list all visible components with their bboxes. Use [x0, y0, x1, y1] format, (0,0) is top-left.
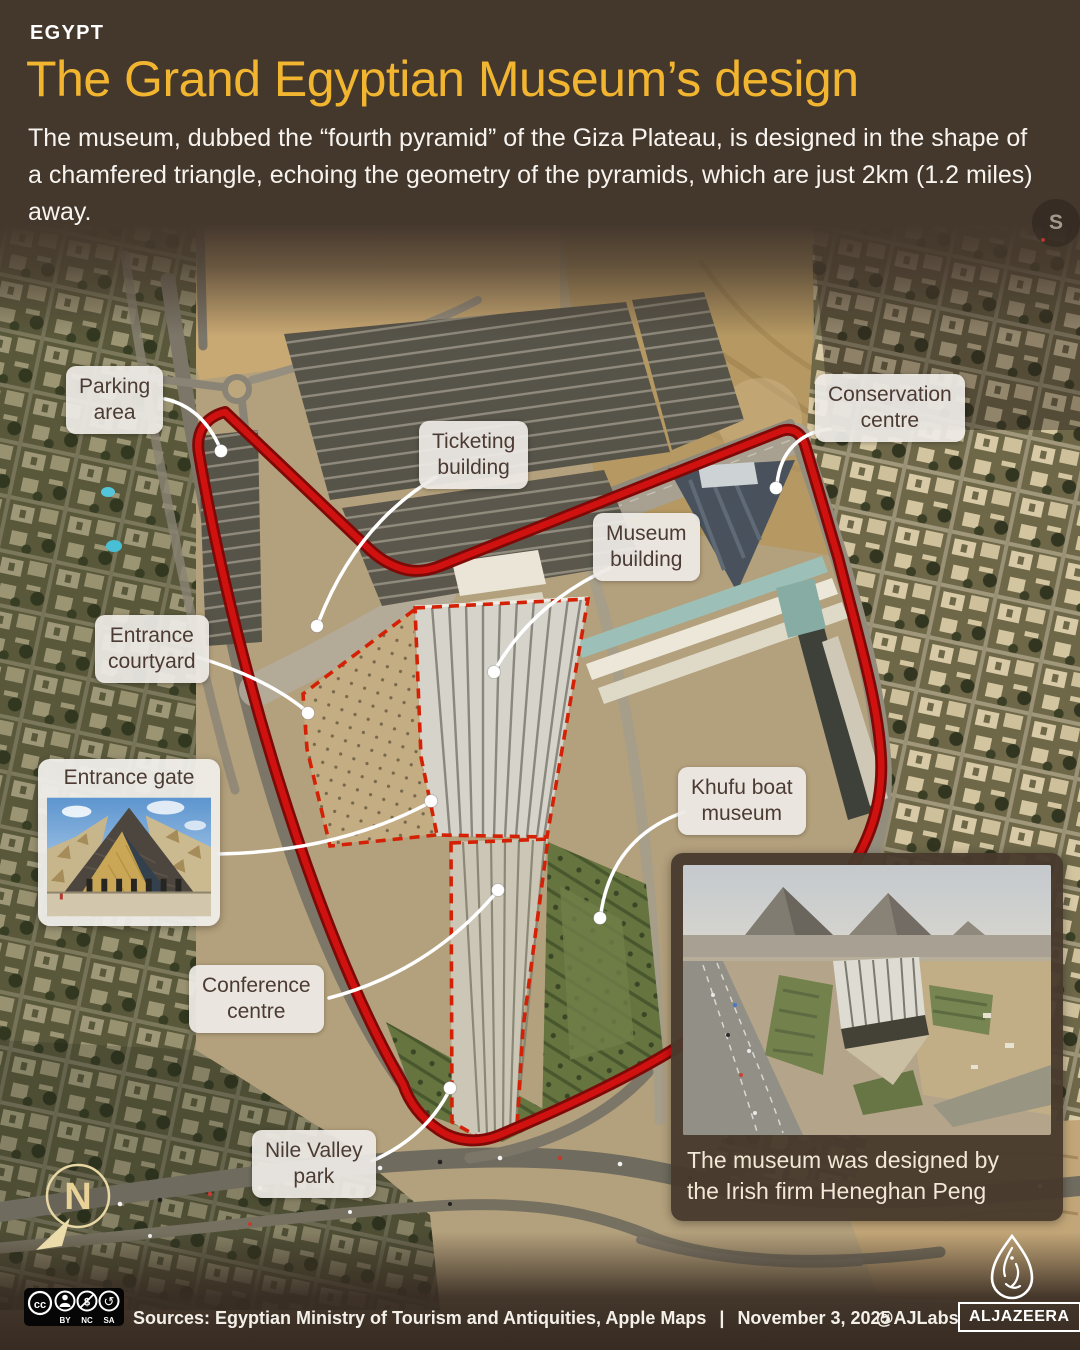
label-ticketing-building: Ticketing building: [419, 421, 528, 489]
label-museum-building: Museum building: [593, 513, 700, 581]
cc-license-badge: cc BY $ NC ↺ SA: [24, 1288, 124, 1328]
compass-n-letter: N: [64, 1176, 91, 1218]
label-khufu-boat-museum: Khufu boat museum: [678, 767, 806, 835]
page-title: The Grand Egyptian Museum’s design: [26, 50, 859, 108]
description: The museum, dubbed the “fourth pyramid” …: [28, 120, 1036, 231]
footer-date: November 3, 2025: [737, 1308, 890, 1329]
sources-text: Sources: Egyptian Ministry of Tourism an…: [133, 1308, 706, 1329]
cc-letters: cc: [34, 1299, 46, 1311]
label-parking-area: Parking area: [66, 366, 163, 434]
aerial-photo: [683, 865, 1051, 1135]
ajlabs-credit: @AJLabs: [876, 1308, 959, 1329]
cc-nc-label: NC: [81, 1316, 93, 1325]
cc-by-label: BY: [59, 1316, 71, 1325]
imagery-badge-tick-icon: [1041, 238, 1045, 242]
compass-needle-icon: [36, 1218, 70, 1250]
label-conservation-centre: Conservation centre: [815, 374, 965, 442]
cc-sa-label: SA: [103, 1316, 114, 1325]
entrance-gate-card: Entrance gate: [38, 759, 220, 926]
cc-sa-glyph: ↺: [104, 1294, 115, 1309]
entrance-gate-photo: [47, 797, 211, 917]
aljazeera-wordmark: ALJAZEERA: [958, 1302, 1080, 1332]
imagery-south-badge: S: [1032, 199, 1080, 247]
infographic-canvas: S EGYPT The Grand Egyptian Museum’s desi…: [0, 0, 1080, 1350]
label-entrance-courtyard: Entrance courtyard: [95, 615, 209, 683]
aljazeera-logo-icon: [986, 1234, 1038, 1300]
entrance-gate-title: Entrance gate: [38, 766, 220, 790]
aerial-photo-caption: The museum was designed by the Irish fir…: [687, 1145, 1047, 1207]
kicker: EGYPT: [30, 22, 104, 45]
footer-separator: |: [719, 1308, 724, 1329]
footer-sources-row: Sources: Egyptian Ministry of Tourism an…: [133, 1308, 891, 1329]
label-conference-centre: Conference centre: [189, 965, 324, 1033]
label-nile-valley-park: Nile Valley park: [252, 1130, 376, 1198]
north-compass: N: [30, 1150, 130, 1262]
imagery-south-letter: S: [1049, 211, 1063, 235]
aerial-photo-card: The museum was designed by the Irish fir…: [671, 853, 1063, 1221]
